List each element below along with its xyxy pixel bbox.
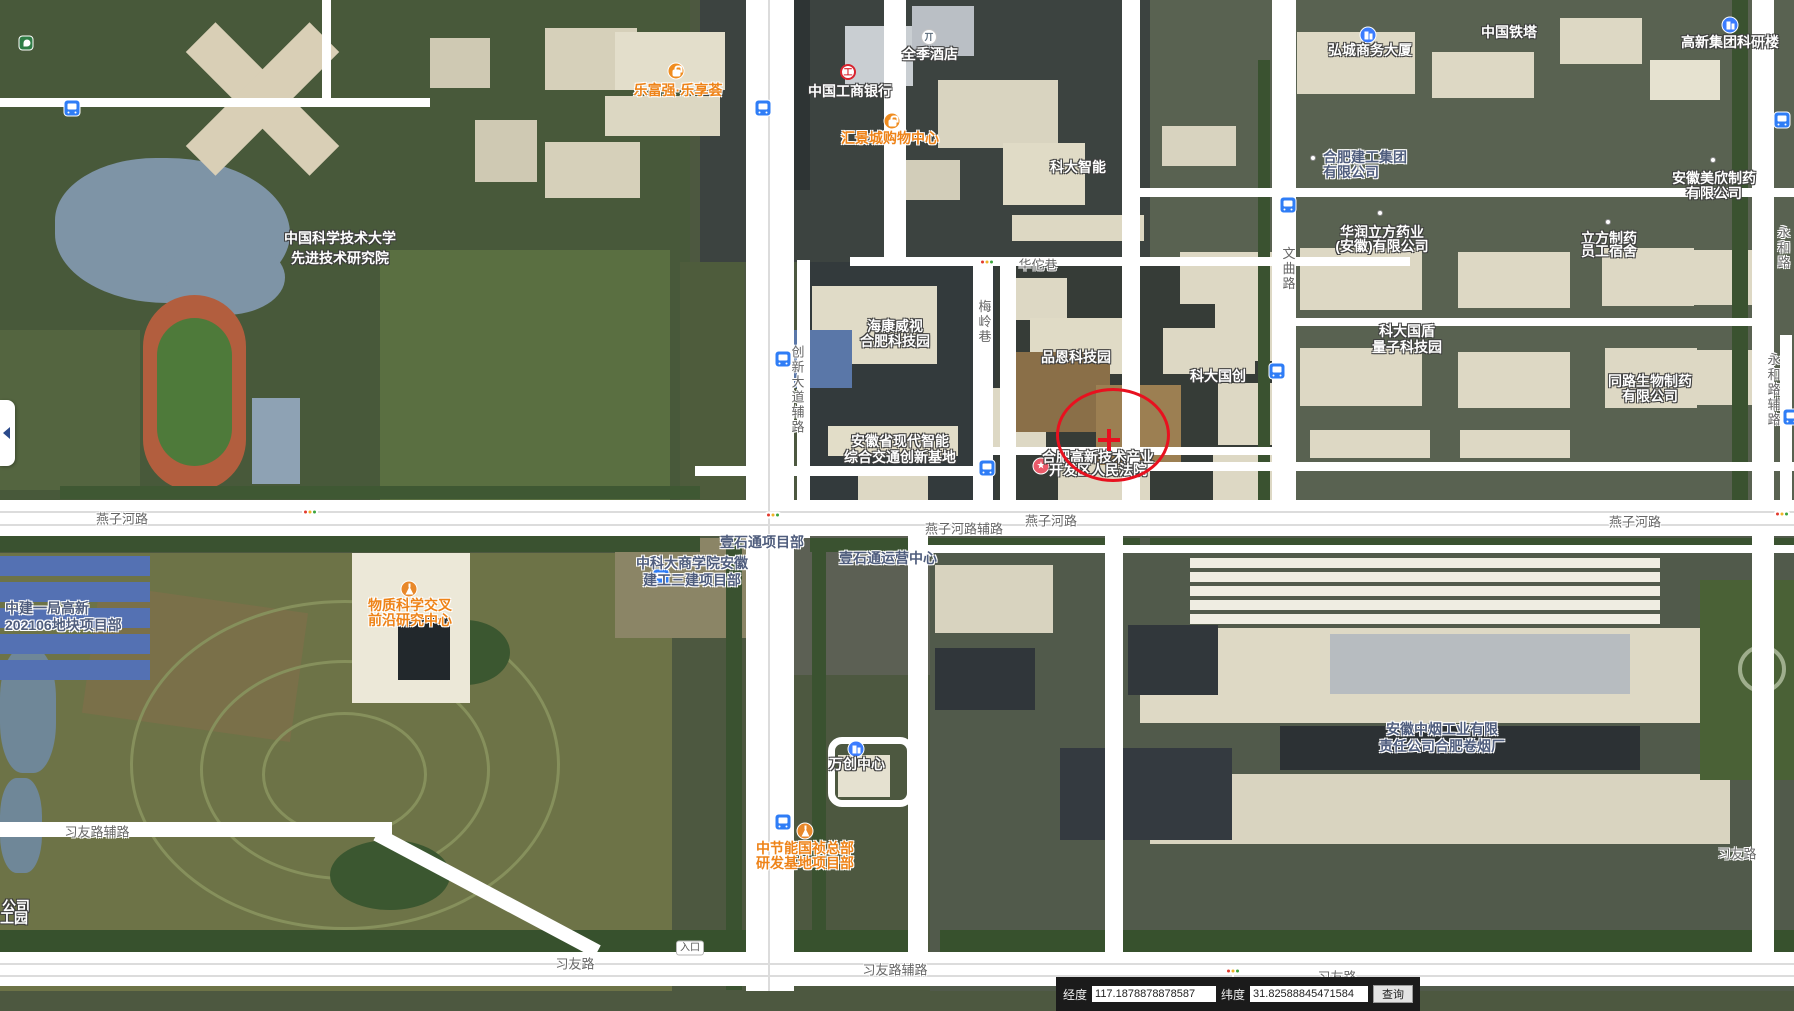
- latitude-label: 纬度: [1221, 986, 1245, 1003]
- map-patch: [726, 538, 742, 990]
- poi-label[interactable]: 责任公司合肥卷烟厂: [1379, 736, 1505, 756]
- map-patch: [0, 511, 1794, 513]
- poi-dot: [1605, 219, 1611, 225]
- query-button[interactable]: 查询: [1373, 985, 1413, 1003]
- map-patch: [1295, 318, 1760, 326]
- road-label: 习友路: [555, 954, 594, 973]
- map-patch: [1190, 600, 1660, 610]
- map-patch: [1162, 126, 1236, 166]
- traffic-light-icon: [1225, 968, 1241, 975]
- coordinate-bar: 经度 纬度 查询: [1056, 977, 1420, 1011]
- poi-label[interactable]: 综合交通创新基地: [844, 447, 956, 467]
- map-patch: [935, 565, 1053, 633]
- poi-label[interactable]: 202106地块项目部: [5, 615, 122, 635]
- map-patch: [0, 536, 700, 552]
- road-label: 梅岭巷: [975, 300, 994, 345]
- poi-label[interactable]: 员工宿舍: [1581, 241, 1637, 261]
- poi-label[interactable]: 科大智能: [1050, 157, 1106, 177]
- poi-label[interactable]: 中国工商银行: [808, 81, 892, 101]
- map-patch: [940, 930, 1794, 952]
- traffic-light-icon: [765, 512, 781, 519]
- bus-stop-icon[interactable]: [1280, 197, 1297, 214]
- sidebar-collapse-toggle[interactable]: [0, 400, 15, 466]
- map-patch: [1458, 352, 1570, 408]
- bus-stop-icon[interactable]: [979, 460, 996, 477]
- poi-label[interactable]: 建工三建项目部: [643, 570, 741, 590]
- bus-stop-icon[interactable]: [64, 100, 81, 117]
- map-patch: [0, 524, 1794, 526]
- map-patch: [900, 160, 960, 200]
- poi-label[interactable]: 万创中心: [829, 754, 885, 774]
- research-flask-icon[interactable]: [797, 823, 814, 840]
- road-label: 燕子河路: [1609, 512, 1661, 531]
- road-label: 习友路: [1717, 844, 1756, 863]
- road-label: 文曲路: [1279, 247, 1298, 292]
- map-patch: [1690, 350, 1760, 405]
- map-patch: [1105, 535, 1123, 955]
- map-patch: [322, 0, 331, 98]
- map-patch: [1310, 430, 1430, 458]
- icbc-bank-icon[interactable]: 工: [840, 64, 856, 80]
- poi-label[interactable]: 壹石通项目部: [720, 532, 804, 552]
- poi-label[interactable]: 有限公司: [1323, 162, 1379, 182]
- poi-label[interactable]: (安徽)有限公司: [1335, 236, 1428, 256]
- map-patch: [545, 142, 640, 198]
- road-label: 燕子河路: [96, 509, 148, 528]
- map-patch: [0, 822, 392, 837]
- road-label: 永和路: [1774, 226, 1793, 271]
- target-marker-cross: [1107, 429, 1111, 451]
- map-patch: [1460, 430, 1570, 458]
- park-icon[interactable]: [19, 36, 34, 51]
- map-patch: [1000, 262, 1016, 504]
- map-patch: [1190, 614, 1660, 624]
- poi-label[interactable]: 先进技术研究院: [291, 248, 389, 268]
- satellite-map-canvas[interactable]: ★工丌 中国科学技术大学先进技术研究院乐富强·乐享荟中国工商银行全季酒店汇景城购…: [0, 0, 1794, 991]
- road-label: 永和路辅路: [1764, 353, 1783, 428]
- road-label: 创新大道辅路: [788, 345, 807, 435]
- map-patch: [262, 712, 427, 837]
- map-patch: [0, 660, 150, 680]
- map-patch: [1458, 252, 1570, 308]
- traffic-light-icon: [302, 509, 318, 516]
- map-patch: [812, 552, 826, 952]
- map-patch: [0, 556, 150, 576]
- map-patch: [938, 80, 1058, 148]
- poi-label[interactable]: 研发基地项目部: [756, 853, 854, 873]
- poi-label[interactable]: 中国科学技术大学: [284, 228, 396, 248]
- target-marker-circle: [1056, 388, 1170, 482]
- map-patch: [1128, 625, 1218, 695]
- road-label: 华佗巷: [1018, 255, 1057, 274]
- map-patch: [1190, 572, 1660, 582]
- bus-stop-icon[interactable]: [1783, 409, 1794, 426]
- poi-dot: [1377, 210, 1383, 216]
- poi-label[interactable]: 品恩科技园: [1041, 347, 1111, 367]
- map-patch: [380, 250, 670, 500]
- bus-stop-icon[interactable]: [775, 814, 792, 831]
- shopping-icon[interactable]: [668, 63, 685, 80]
- map-patch: [1560, 18, 1642, 64]
- map-patch: [252, 398, 300, 484]
- shopping-icon[interactable]: [884, 113, 901, 130]
- map-patch: [60, 486, 700, 499]
- map-patch: [1330, 634, 1630, 694]
- bus-stop-icon[interactable]: [1774, 112, 1791, 129]
- map-patch: [1690, 250, 1760, 305]
- map-patch: [1190, 558, 1660, 568]
- road-label: 燕子河路: [1025, 511, 1077, 530]
- map-patch: [1732, 0, 1748, 505]
- map-patch: [1432, 52, 1534, 98]
- map-patch: [935, 648, 1035, 710]
- road-label: 习友路辅路: [64, 822, 129, 841]
- longitude-label: 经度: [1063, 986, 1087, 1003]
- map-patch: [1060, 748, 1232, 840]
- map-patch: [928, 545, 1794, 553]
- poi-label[interactable]: 中国铁塔: [1481, 22, 1537, 42]
- poi-label[interactable]: 前沿研究中心: [368, 610, 452, 630]
- office-building-icon[interactable]: [1722, 17, 1739, 34]
- latitude-input[interactable]: [1250, 986, 1368, 1002]
- road-label: 燕子河路辅路: [925, 519, 1003, 538]
- map-patch: [157, 318, 232, 466]
- map-patch: [695, 466, 975, 476]
- poi-label[interactable]: 壹石通运营中心: [839, 548, 937, 568]
- traffic-light-icon: [1774, 511, 1790, 518]
- map-patch: [605, 96, 720, 136]
- poi-dot: [1310, 155, 1316, 161]
- entrance-badge: 入口: [676, 941, 704, 956]
- map-patch: [1150, 774, 1730, 844]
- hotel-icon[interactable]: 丌: [921, 29, 937, 45]
- map-patch: [1140, 462, 1794, 471]
- longitude-input[interactable]: [1092, 986, 1216, 1002]
- map-patch: [0, 330, 140, 490]
- map-patch: [0, 500, 1794, 536]
- poi-dot: [1710, 157, 1716, 163]
- map-patch: [0, 634, 150, 654]
- traffic-light-icon: [979, 259, 995, 266]
- left-arrow-icon: [3, 427, 10, 439]
- map-patch: [1650, 60, 1720, 100]
- poi-label[interactable]: 有限公司: [1686, 183, 1742, 203]
- map-patch: [1752, 0, 1774, 952]
- poi-label[interactable]: 弘城商务大厦: [1328, 40, 1412, 60]
- map-patch: [330, 840, 450, 910]
- poi-label[interactable]: 科大国创: [1190, 366, 1246, 386]
- poi-label[interactable]: 汇景城购物中心: [841, 128, 939, 148]
- poi-label[interactable]: 乐富强·乐享荟: [634, 80, 723, 100]
- poi-label[interactable]: 全季酒店: [902, 44, 958, 64]
- poi-label[interactable]: 工园: [0, 908, 28, 928]
- map-patch: [475, 120, 537, 182]
- poi-label[interactable]: 有限公司: [1622, 386, 1678, 406]
- map-patch: [1190, 586, 1660, 596]
- bus-stop-icon[interactable]: [1269, 363, 1286, 380]
- map-patch: [1258, 60, 1270, 500]
- poi-label[interactable]: 高新集团科研楼: [1681, 32, 1779, 52]
- poi-label[interactable]: 量子科技园: [1372, 337, 1442, 357]
- bus-stop-icon[interactable]: [755, 100, 772, 117]
- poi-label[interactable]: 合肥科技园: [860, 331, 930, 351]
- map-patch: [430, 38, 490, 88]
- road-label: 习友路辅路: [862, 960, 927, 979]
